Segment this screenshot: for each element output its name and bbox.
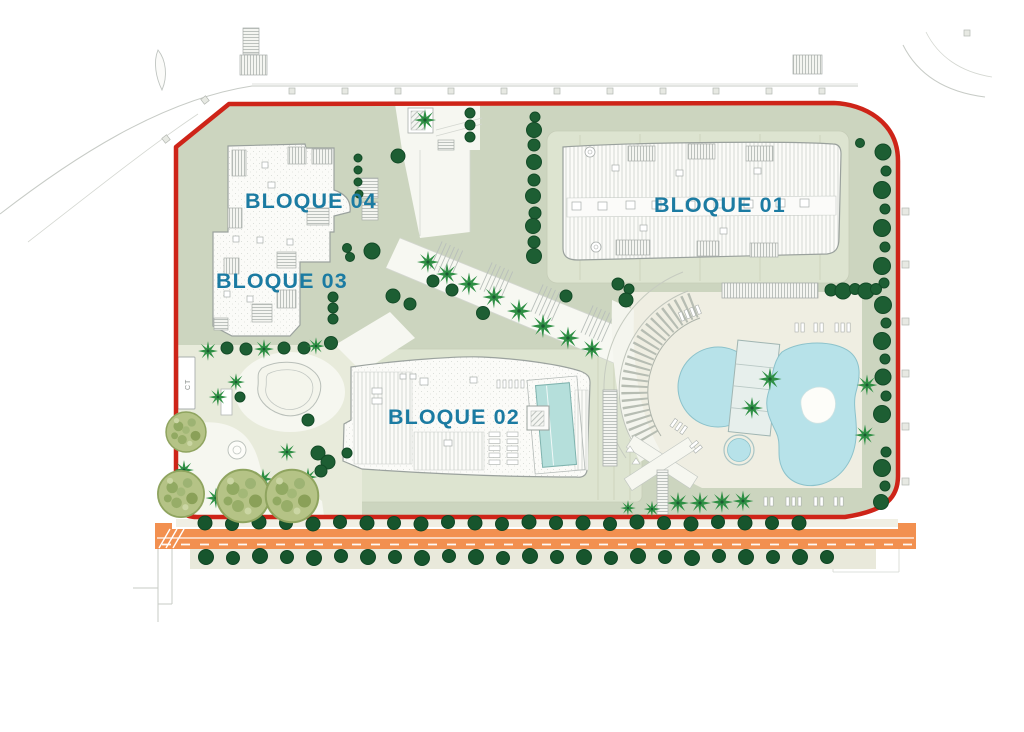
site-plan-canvas: CT [0, 0, 1024, 732]
pergola [722, 283, 818, 298]
site-plan-drawing: CT [0, 0, 1024, 732]
label-bloque-01: BLOQUE 01 [654, 193, 786, 217]
entrance-stairs [438, 140, 454, 150]
external-stairs [793, 55, 822, 74]
pool-kids [728, 439, 751, 462]
garden-feature [228, 441, 246, 459]
hedge-strip [603, 390, 617, 466]
ct-label: CT [185, 379, 192, 390]
pool-island [801, 387, 836, 423]
external-stairs [240, 55, 267, 75]
label-bloque-02: BLOQUE 02 [388, 405, 520, 429]
label-bloque-03: BLOQUE 03 [216, 269, 348, 293]
external-stairs [243, 28, 259, 54]
label-bloque-04: BLOQUE 04 [245, 189, 377, 213]
